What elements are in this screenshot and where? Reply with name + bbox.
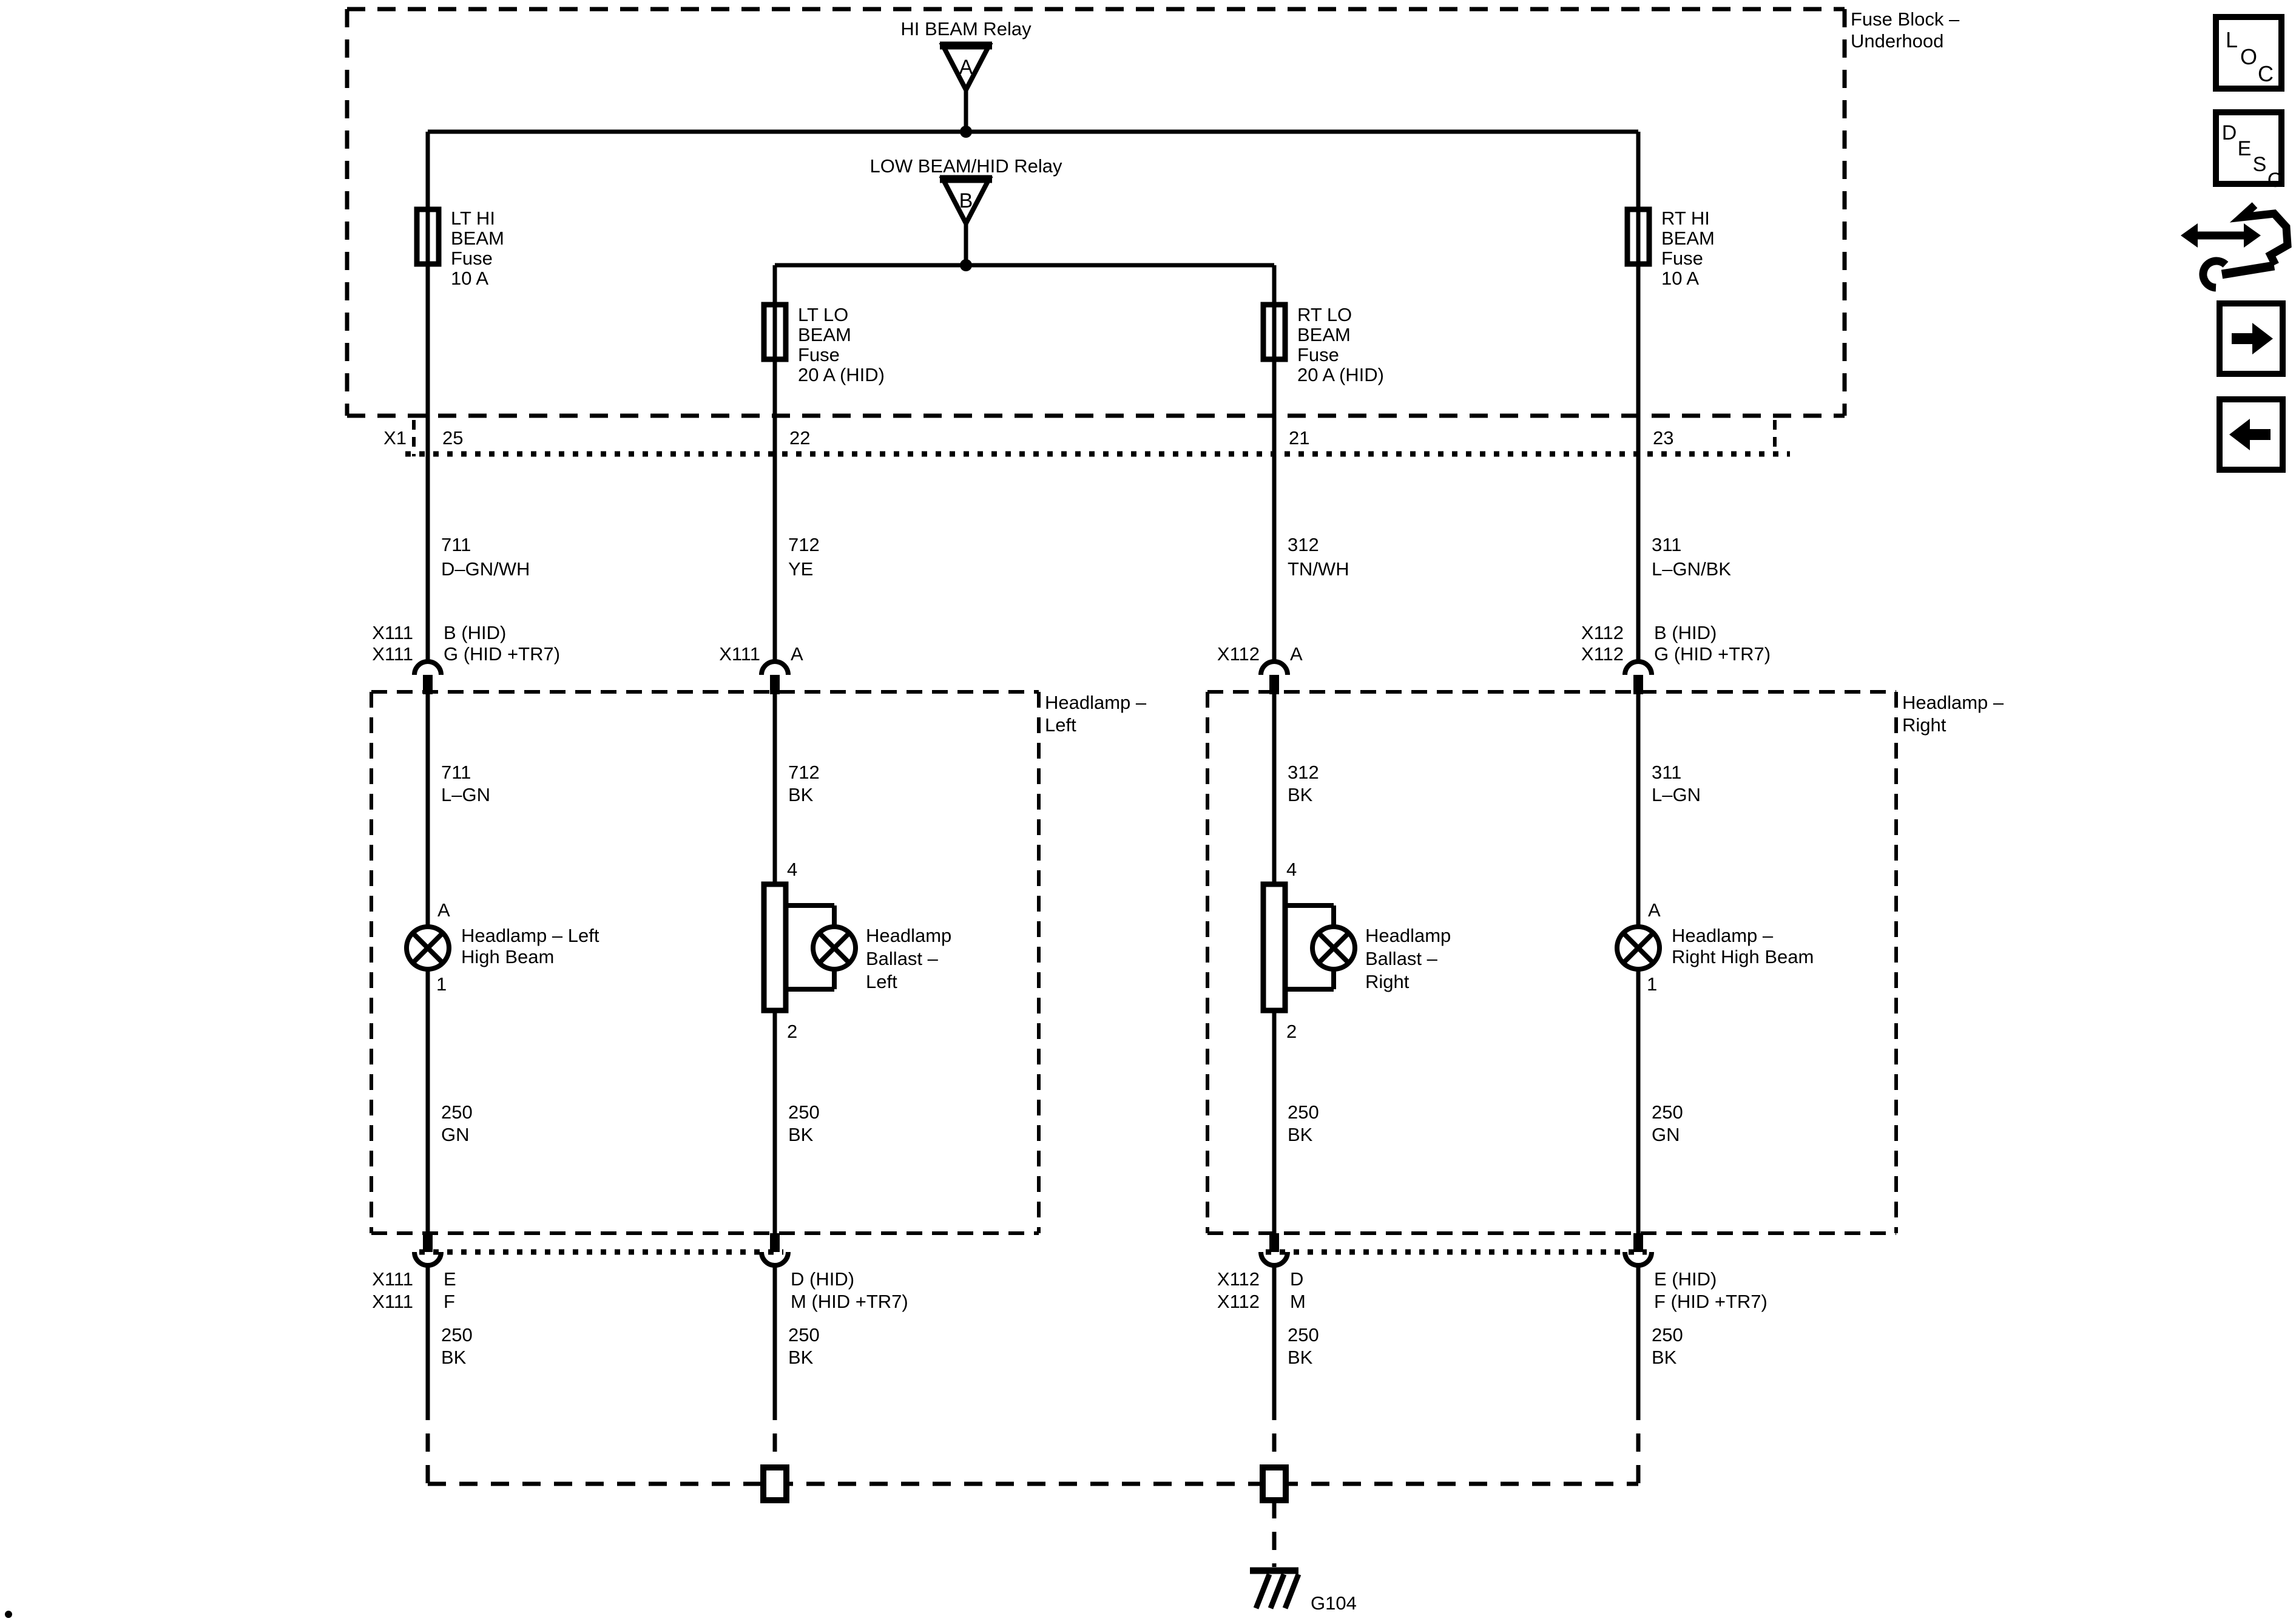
- desc-letter: D: [2222, 121, 2237, 144]
- wire-circuit-number: 712: [788, 534, 820, 555]
- fuse-block-label-line2: Underhood: [1851, 30, 1943, 52]
- connector-pin: D (HID): [791, 1268, 854, 1290]
- ground-label: G104: [1311, 1592, 1357, 1614]
- ground-splice: [763, 1467, 786, 1500]
- wire-circuit-number: 250: [1288, 1324, 1319, 1345]
- ballast-icon: [764, 884, 786, 1010]
- component-label: Right: [1365, 971, 1410, 992]
- wire-color: BK: [1288, 1347, 1313, 1368]
- component-label: Ballast –: [1365, 948, 1438, 969]
- fuse-label: BEAM: [1661, 228, 1715, 249]
- ground-distribution: G104: [428, 1402, 1638, 1614]
- fuse-block-pin: 23: [1653, 427, 1673, 448]
- ground-tooth: [1256, 1574, 1269, 1608]
- fuse-block-label-line1: Fuse Block –: [1851, 8, 1960, 30]
- stray-dot: [5, 1611, 12, 1618]
- wire-color: BK: [788, 1124, 814, 1145]
- connector-pin: A: [1290, 643, 1303, 665]
- component-label: Headlamp –: [1672, 925, 1774, 946]
- pin-bottom: 1: [436, 973, 447, 995]
- connector-name: X112: [1217, 643, 1260, 665]
- fuse-label: BEAM: [451, 228, 504, 249]
- wire-circuit-number: 312: [1288, 534, 1319, 555]
- desc-icon[interactable]: DESC: [2216, 112, 2282, 192]
- connector-name: X112: [1217, 1268, 1260, 1290]
- junction-dot: [960, 126, 972, 138]
- fuse-label: RT HI: [1661, 208, 1710, 229]
- x1-connector-label: X1: [383, 427, 407, 448]
- wire-color: BK: [1288, 784, 1313, 805]
- relay-letter: B: [959, 189, 973, 212]
- pin-top: 4: [1286, 859, 1297, 880]
- connector-pin: B (HID): [1654, 622, 1717, 643]
- relay-label: HI BEAM Relay: [900, 18, 1032, 39]
- desc-letter: E: [2238, 137, 2252, 160]
- connector-pin: G (HID +TR7): [1654, 643, 1771, 665]
- wire-color: D–GN/WH: [441, 558, 530, 580]
- connector-x1-strip: X1: [383, 420, 1790, 456]
- component-label: High Beam: [461, 946, 554, 967]
- pin-top: A: [1648, 899, 1661, 921]
- wire-color: BK: [1288, 1124, 1313, 1145]
- inline-connector-bottom-icon: [761, 1252, 788, 1265]
- wire-color: YE: [788, 558, 813, 580]
- ground-splice: [1263, 1467, 1286, 1500]
- fuse-label: 10 A: [451, 268, 488, 289]
- connector-pin: A: [791, 643, 803, 665]
- connector-pin: D: [1290, 1268, 1303, 1290]
- relay-buses: HI BEAM RelayALOW BEAM/HID RelayB: [428, 18, 1638, 271]
- loc-letter: C: [2258, 61, 2274, 86]
- wire-circuit-number: 311: [1652, 762, 1681, 783]
- fuse-label: 20 A (HID): [798, 364, 885, 385]
- fuse-label: LT LO: [798, 304, 848, 325]
- headlamp-right-box: Headlamp –Right: [1207, 692, 2004, 1252]
- pin-top: 4: [787, 859, 797, 880]
- fuse-block-label: Fuse Block –Underhood: [1851, 8, 1960, 52]
- wire-color: GN: [441, 1124, 470, 1145]
- inline-connector-top-icon: [1261, 662, 1288, 675]
- fuse-label: BEAM: [798, 324, 851, 345]
- relay-a: HI BEAM RelayA: [900, 18, 1032, 138]
- sidebar-icons: LOCDESC: [2181, 17, 2288, 470]
- connector-name: X112: [1581, 622, 1624, 643]
- fuse-block-pin: 22: [789, 427, 810, 448]
- connector-pin: F: [444, 1291, 455, 1312]
- ground-tooth: [1271, 1574, 1284, 1608]
- fuse-block-pin: 21: [1289, 427, 1309, 448]
- relay-label: LOW BEAM/HID Relay: [870, 155, 1062, 177]
- component-label: Right High Beam: [1672, 946, 1814, 967]
- box-label-line1: Headlamp –: [1045, 692, 1147, 713]
- fuse-label: 20 A (HID): [1297, 364, 1384, 385]
- ballast-icon: [1263, 884, 1285, 1010]
- component-label: Headlamp – Left: [461, 925, 599, 946]
- wire-color: L–GN: [441, 784, 490, 805]
- desc-letter: C: [2267, 169, 2283, 192]
- box-label-line1: Headlamp –: [1902, 692, 2004, 713]
- wrench-arrows-icon[interactable]: [2181, 205, 2288, 288]
- pin-bottom: 2: [1286, 1021, 1297, 1042]
- fuse-label: RT LO: [1297, 304, 1352, 325]
- wire-color: TN/WH: [1288, 558, 1349, 580]
- ground-tooth: [1285, 1574, 1298, 1608]
- component-label: Headlamp: [1365, 925, 1451, 946]
- wire-circuit-number: 250: [1288, 1102, 1319, 1123]
- wire-color: BK: [441, 1347, 467, 1368]
- connector-name: X111: [372, 622, 413, 643]
- box-label-line2: Left: [1045, 714, 1076, 736]
- fuse-label: Fuse: [451, 248, 493, 269]
- circuit-rt-hi-beam: RT HIBEAMFuse10 A23311L–GN/BKX112X112B (…: [1581, 132, 1814, 1402]
- fuse-label: LT HI: [451, 208, 495, 229]
- connector-name: X111: [372, 643, 413, 665]
- inline-connector-top-icon: [1625, 662, 1652, 675]
- connector-name: X112: [1217, 1291, 1260, 1312]
- connector-pin: F (HID +TR7): [1654, 1291, 1768, 1312]
- fuse-label: Fuse: [1661, 248, 1703, 269]
- connector-pin: M: [1290, 1291, 1306, 1312]
- inline-connector-top-icon: [414, 662, 441, 675]
- fuse-label: Fuse: [798, 344, 840, 365]
- pin-bottom: 2: [787, 1021, 797, 1042]
- pin-top: A: [437, 899, 450, 921]
- wire-circuit-number: 250: [441, 1102, 473, 1123]
- connector-pin: E (HID): [1654, 1268, 1717, 1290]
- component-label: Headlamp: [866, 925, 951, 946]
- headlamp-wiring-diagram: Fuse Block –UnderhoodX1HI BEAM RelayALOW…: [0, 0, 2296, 1621]
- loc-icon[interactable]: LOC: [2216, 17, 2281, 89]
- connector-pin: G (HID +TR7): [444, 643, 560, 665]
- fuse-label: BEAM: [1297, 324, 1351, 345]
- connector-pin: M (HID +TR7): [791, 1291, 908, 1312]
- connector-name: X112: [1581, 643, 1624, 665]
- pin-bottom: 1: [1647, 973, 1657, 995]
- wire-circuit-number: 711: [441, 534, 471, 555]
- connector-name: X111: [719, 643, 760, 665]
- inline-connector-top-icon: [761, 662, 788, 675]
- loc-letter: L: [2226, 27, 2238, 52]
- wire-circuit-number: 250: [788, 1324, 820, 1345]
- box-label-line2: Right: [1902, 714, 1947, 736]
- wire-color: GN: [1652, 1124, 1680, 1145]
- wire-color: L–GN/BK: [1652, 558, 1731, 580]
- fuse-block-pin: 25: [442, 427, 463, 448]
- next-arrow-icon[interactable]: [2220, 303, 2283, 374]
- fuse-block-underhood: Fuse Block –Underhood: [347, 8, 1960, 416]
- wire-circuit-number: 250: [788, 1102, 820, 1123]
- rt-hi-beam-component: AHeadlamp –Right High Beam1: [1617, 692, 1814, 1233]
- wire-color: BK: [788, 784, 814, 805]
- wire-color: BK: [788, 1347, 814, 1368]
- relay-b: LOW BEAM/HID RelayB: [870, 155, 1062, 271]
- connector-pin: B (HID): [444, 622, 506, 643]
- connector-name: X111: [372, 1268, 413, 1290]
- circuit-lt-hi-beam: LT HIBEAMFuse10 A25711D–GN/WHX111X111B (…: [372, 132, 599, 1402]
- component-label: Ballast –: [866, 948, 939, 969]
- fuse-label: 10 A: [1661, 268, 1699, 289]
- wire-circuit-number: 311: [1652, 534, 1681, 555]
- connector-pin: E: [444, 1268, 456, 1290]
- wire-circuit-number: 250: [441, 1324, 473, 1345]
- component-label: Left: [866, 971, 897, 992]
- wire-circuit-number: 250: [1652, 1324, 1683, 1345]
- ground-symbol: [1250, 1571, 1298, 1608]
- desc-letter: S: [2253, 153, 2267, 176]
- relay-letter: A: [959, 56, 973, 79]
- lt-hi-beam-component: AHeadlamp – LeftHigh Beam1: [407, 692, 599, 1233]
- wire-color: L–GN: [1652, 784, 1701, 805]
- loc-letter: O: [2240, 44, 2257, 69]
- junction-dot: [960, 259, 972, 271]
- wire-circuit-number: 711: [441, 762, 471, 783]
- headlamp-left-box: Headlamp –Left: [371, 692, 1147, 1252]
- connector-name: X111: [372, 1291, 413, 1312]
- prev-arrow-icon[interactable]: [2220, 399, 2283, 470]
- wire-circuit-number: 312: [1288, 762, 1319, 783]
- fuse-label: Fuse: [1297, 344, 1339, 365]
- wire-color: BK: [1652, 1347, 1677, 1368]
- wire-circuit-number: 712: [788, 762, 820, 783]
- wire-circuit-number: 250: [1652, 1102, 1683, 1123]
